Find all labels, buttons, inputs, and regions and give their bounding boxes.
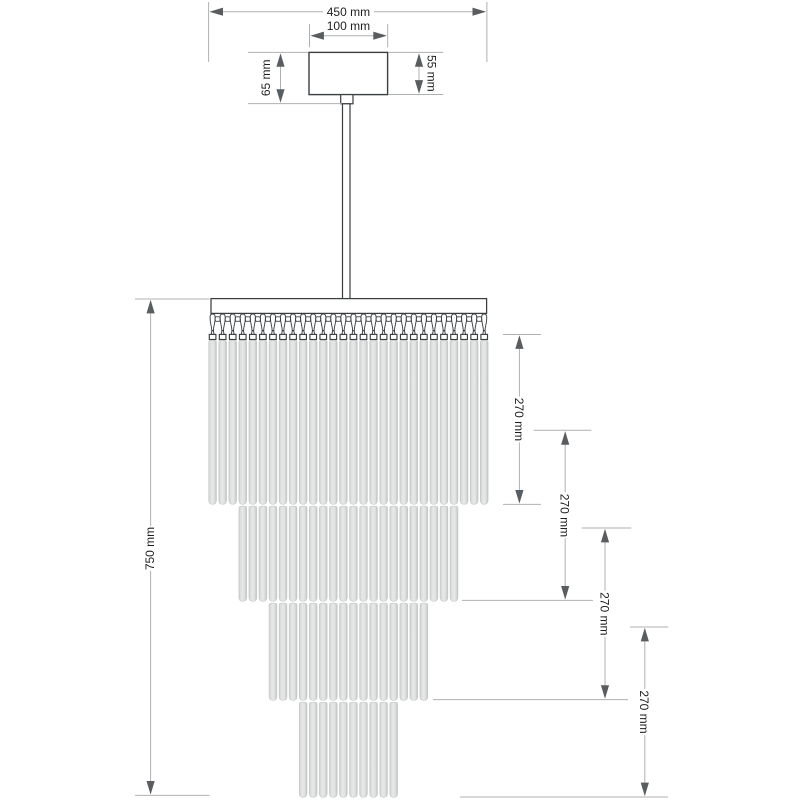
- svg-text:270 mm: 270 mm: [512, 398, 526, 441]
- svg-text:270 mm: 270 mm: [558, 494, 572, 537]
- svg-text:65 mm: 65 mm: [259, 59, 273, 96]
- svg-text:55 mm: 55 mm: [425, 55, 439, 92]
- svg-text:270 mm: 270 mm: [637, 690, 651, 733]
- svg-text:450 mm: 450 mm: [327, 5, 370, 19]
- svg-text:750 mm: 750 mm: [143, 527, 157, 570]
- svg-text:100 mm: 100 mm: [327, 19, 370, 33]
- svg-text:270 mm: 270 mm: [597, 592, 611, 635]
